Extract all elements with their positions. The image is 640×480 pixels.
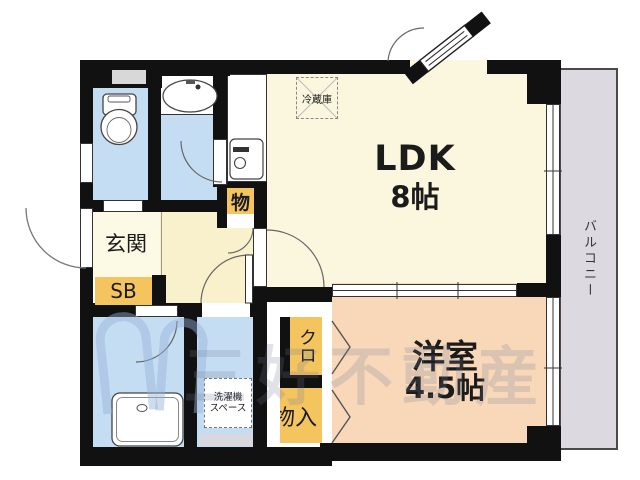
washroom-door-gap <box>213 139 227 185</box>
service-strip <box>267 302 280 443</box>
wall <box>148 76 161 206</box>
floor-plan: バルコニー クロ 物入 SB 物 <box>0 0 640 480</box>
refrigerator-space: 冷蔵庫 <box>296 77 338 119</box>
wall <box>527 426 561 446</box>
refrigerator-label: 冷蔵庫 <box>302 91 332 106</box>
cupboard-interior <box>227 214 254 228</box>
wall <box>487 60 530 74</box>
shoe-box: SB <box>95 277 152 305</box>
balcony-label: バルコニー <box>579 219 598 299</box>
shoe-box-label: SB <box>110 279 136 303</box>
entrance-label: 玄関 <box>95 228 157 258</box>
washer-label-2: スペース <box>210 403 247 414</box>
entrance-door-arc <box>26 208 86 268</box>
wall <box>80 447 332 466</box>
laundry-door-gap <box>202 303 250 317</box>
wall <box>250 303 267 317</box>
wall <box>267 287 332 302</box>
window-toilet-west <box>80 143 93 183</box>
washing-machine-space: 洗濯機 スペース <box>204 378 252 428</box>
toilet-door <box>103 200 143 212</box>
wall <box>213 60 410 74</box>
ldk-name: LDK <box>340 139 490 179</box>
bathroom-door-gap <box>135 305 178 317</box>
wall <box>320 443 561 461</box>
window-toilet-north <box>112 70 146 84</box>
balcony: バルコニー <box>559 68 618 450</box>
washer-label-1: 洗濯機 <box>214 392 243 403</box>
window-ldk-balcony <box>546 104 560 235</box>
western-room-size: 4.5帖 <box>355 365 535 407</box>
closet-box: クロ <box>290 317 322 375</box>
top-door-arc <box>388 28 424 61</box>
wall <box>527 60 561 104</box>
wall <box>184 317 197 450</box>
wall <box>517 283 561 297</box>
cupboard-label: 物 <box>231 188 250 215</box>
pipe-space <box>200 434 253 446</box>
closet-label: クロ <box>293 328 319 364</box>
entrance-door-leaf <box>80 208 93 268</box>
closet-top-gap <box>267 302 332 317</box>
closet-door-track <box>322 317 332 443</box>
floor-toilet <box>93 74 148 205</box>
cupboard-box: 物 <box>227 188 254 214</box>
kitchen-counter <box>227 74 267 182</box>
ldk-door-gap <box>253 228 267 287</box>
door-stub <box>464 11 491 36</box>
wall <box>280 317 290 375</box>
sliding-partition <box>332 284 517 297</box>
floor-bathroom <box>93 305 185 450</box>
ldk-size: 8帖 <box>340 174 490 216</box>
window-western-balcony <box>546 297 560 426</box>
